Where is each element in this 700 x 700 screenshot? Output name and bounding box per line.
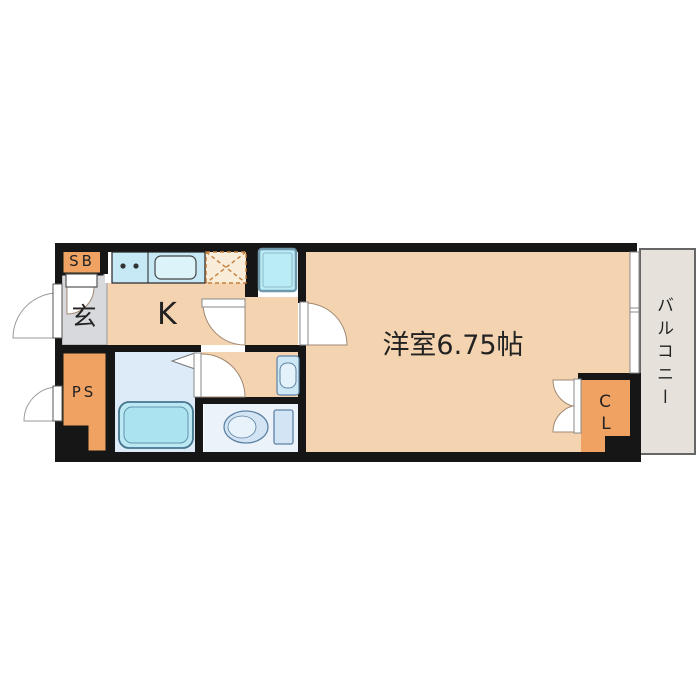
floor-plan-canvas: SB 玄 K PS 洋室6.75帖 C L バルコニー: [0, 0, 700, 700]
closet-door-leaf: [574, 379, 581, 433]
toilet: [224, 410, 293, 444]
floor-plan-drawing: SB 玄 K PS 洋室6.75帖 C L: [0, 0, 700, 700]
kitchen-sink: [155, 256, 196, 279]
washbasin: [277, 356, 299, 395]
main-room-label: 洋室6.75帖: [382, 330, 523, 361]
shoe-box-label: SB: [69, 252, 95, 270]
washroom-door-leaf: [194, 353, 201, 397]
closet-label-l: L: [601, 414, 611, 434]
main-room-door-leaf: [300, 302, 308, 345]
stove-burner-icon: [120, 263, 125, 268]
balcony-label: バルコニー: [651, 296, 676, 411]
ps-door-leaf: [53, 386, 62, 421]
pipe-space-label: PS: [72, 383, 97, 401]
stove-burner-icon: [133, 263, 138, 268]
closet-label-c: C: [599, 392, 611, 412]
sliding-window: [630, 252, 639, 373]
kitchen-door-leaf: [202, 299, 245, 307]
entrance-door-swing: [13, 293, 58, 338]
entrance-door-leaf: [53, 284, 62, 338]
refrigerator-space: [206, 252, 246, 283]
kitchen-label: K: [157, 297, 178, 332]
genkan-door-leaf: [66, 274, 97, 287]
washing-machine-space: [259, 249, 296, 291]
entrance-label: 玄: [71, 302, 96, 331]
